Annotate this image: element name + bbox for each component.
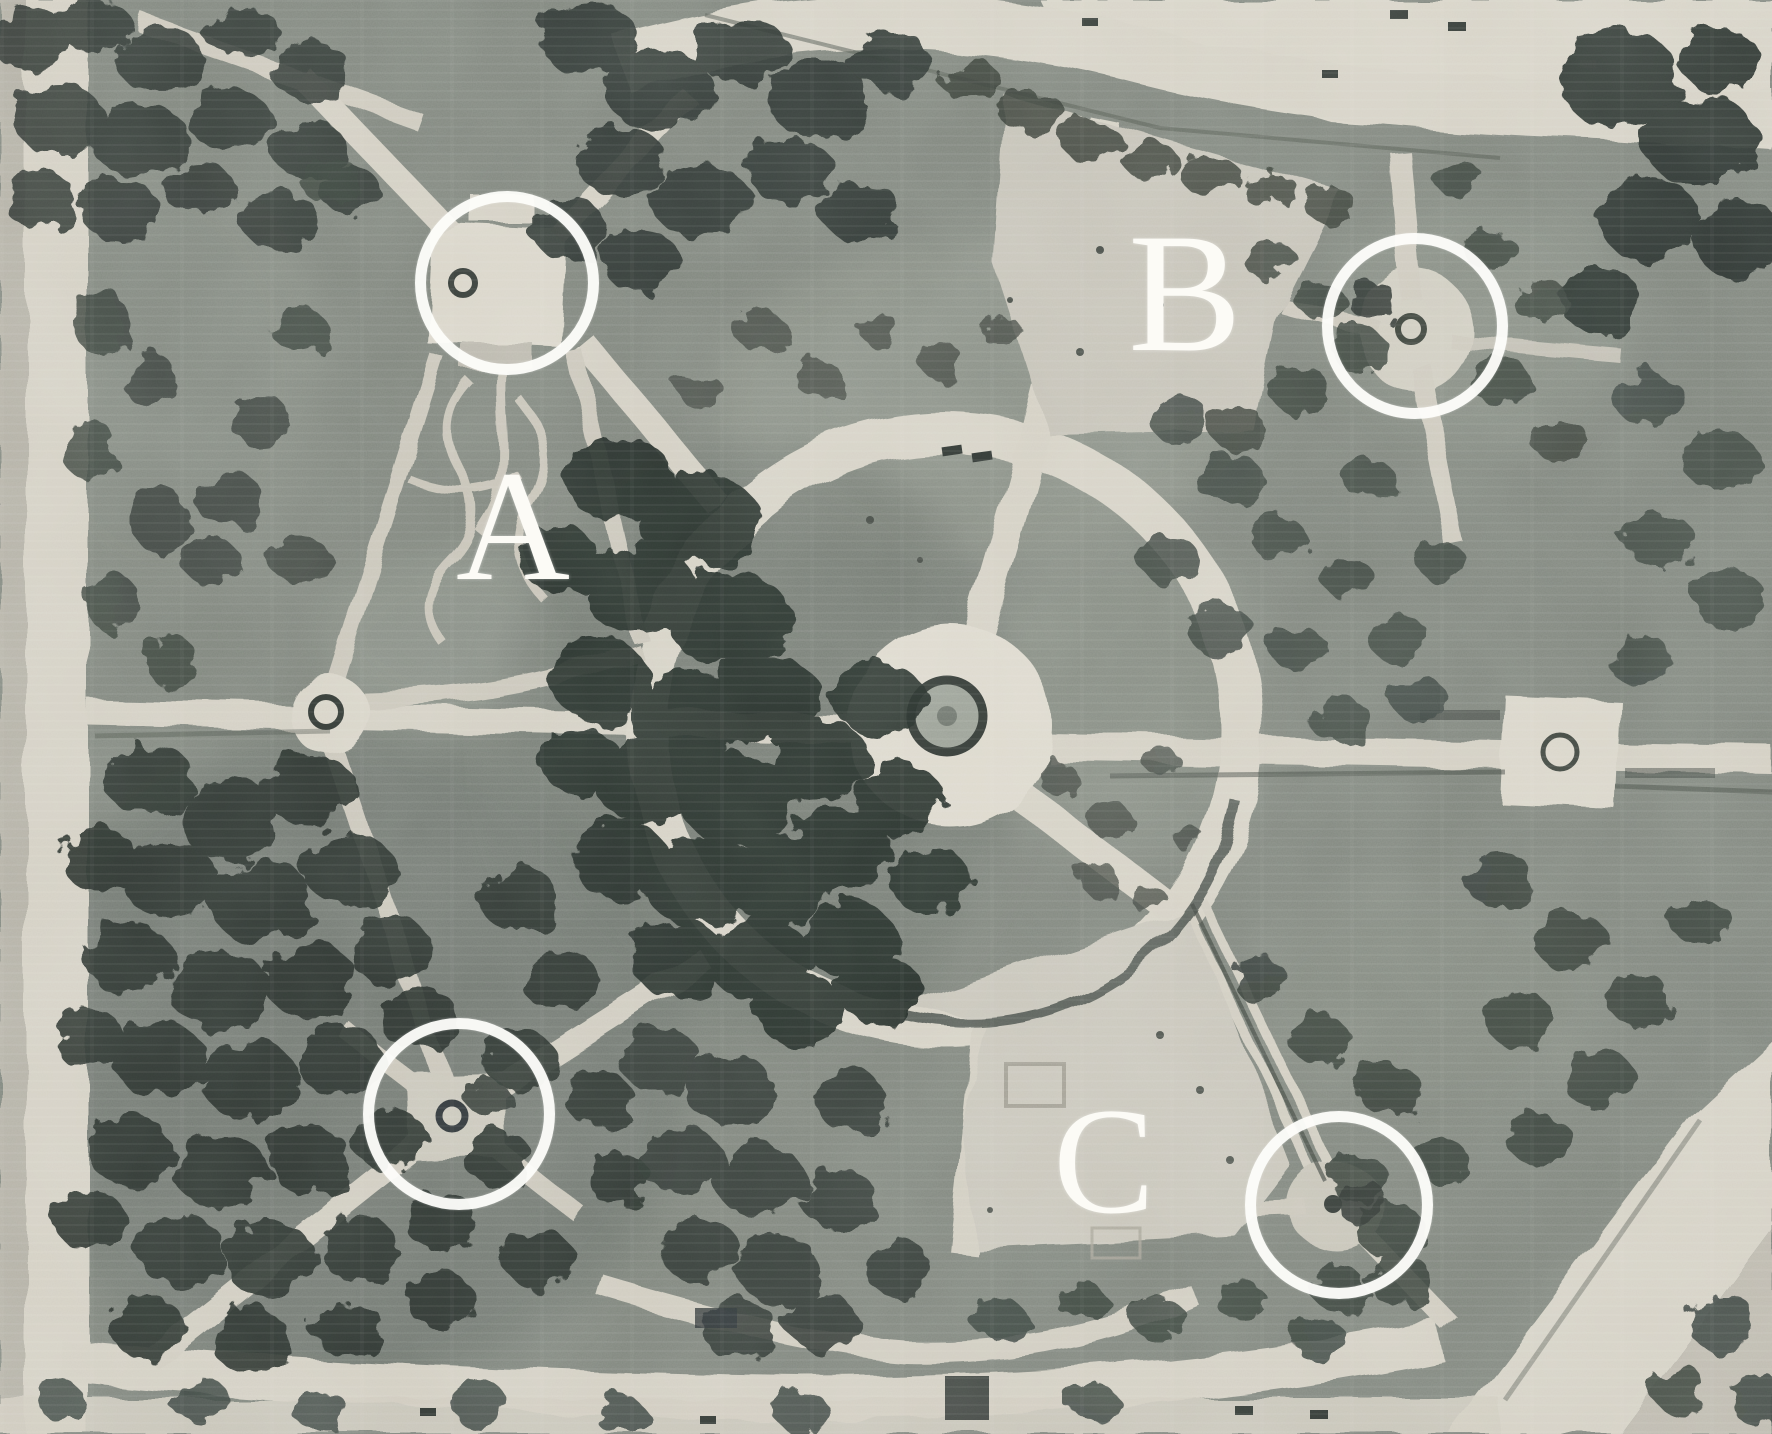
aerial-photograph: [0, 0, 1772, 1434]
screenshot-root: A B C: [0, 0, 1772, 1434]
